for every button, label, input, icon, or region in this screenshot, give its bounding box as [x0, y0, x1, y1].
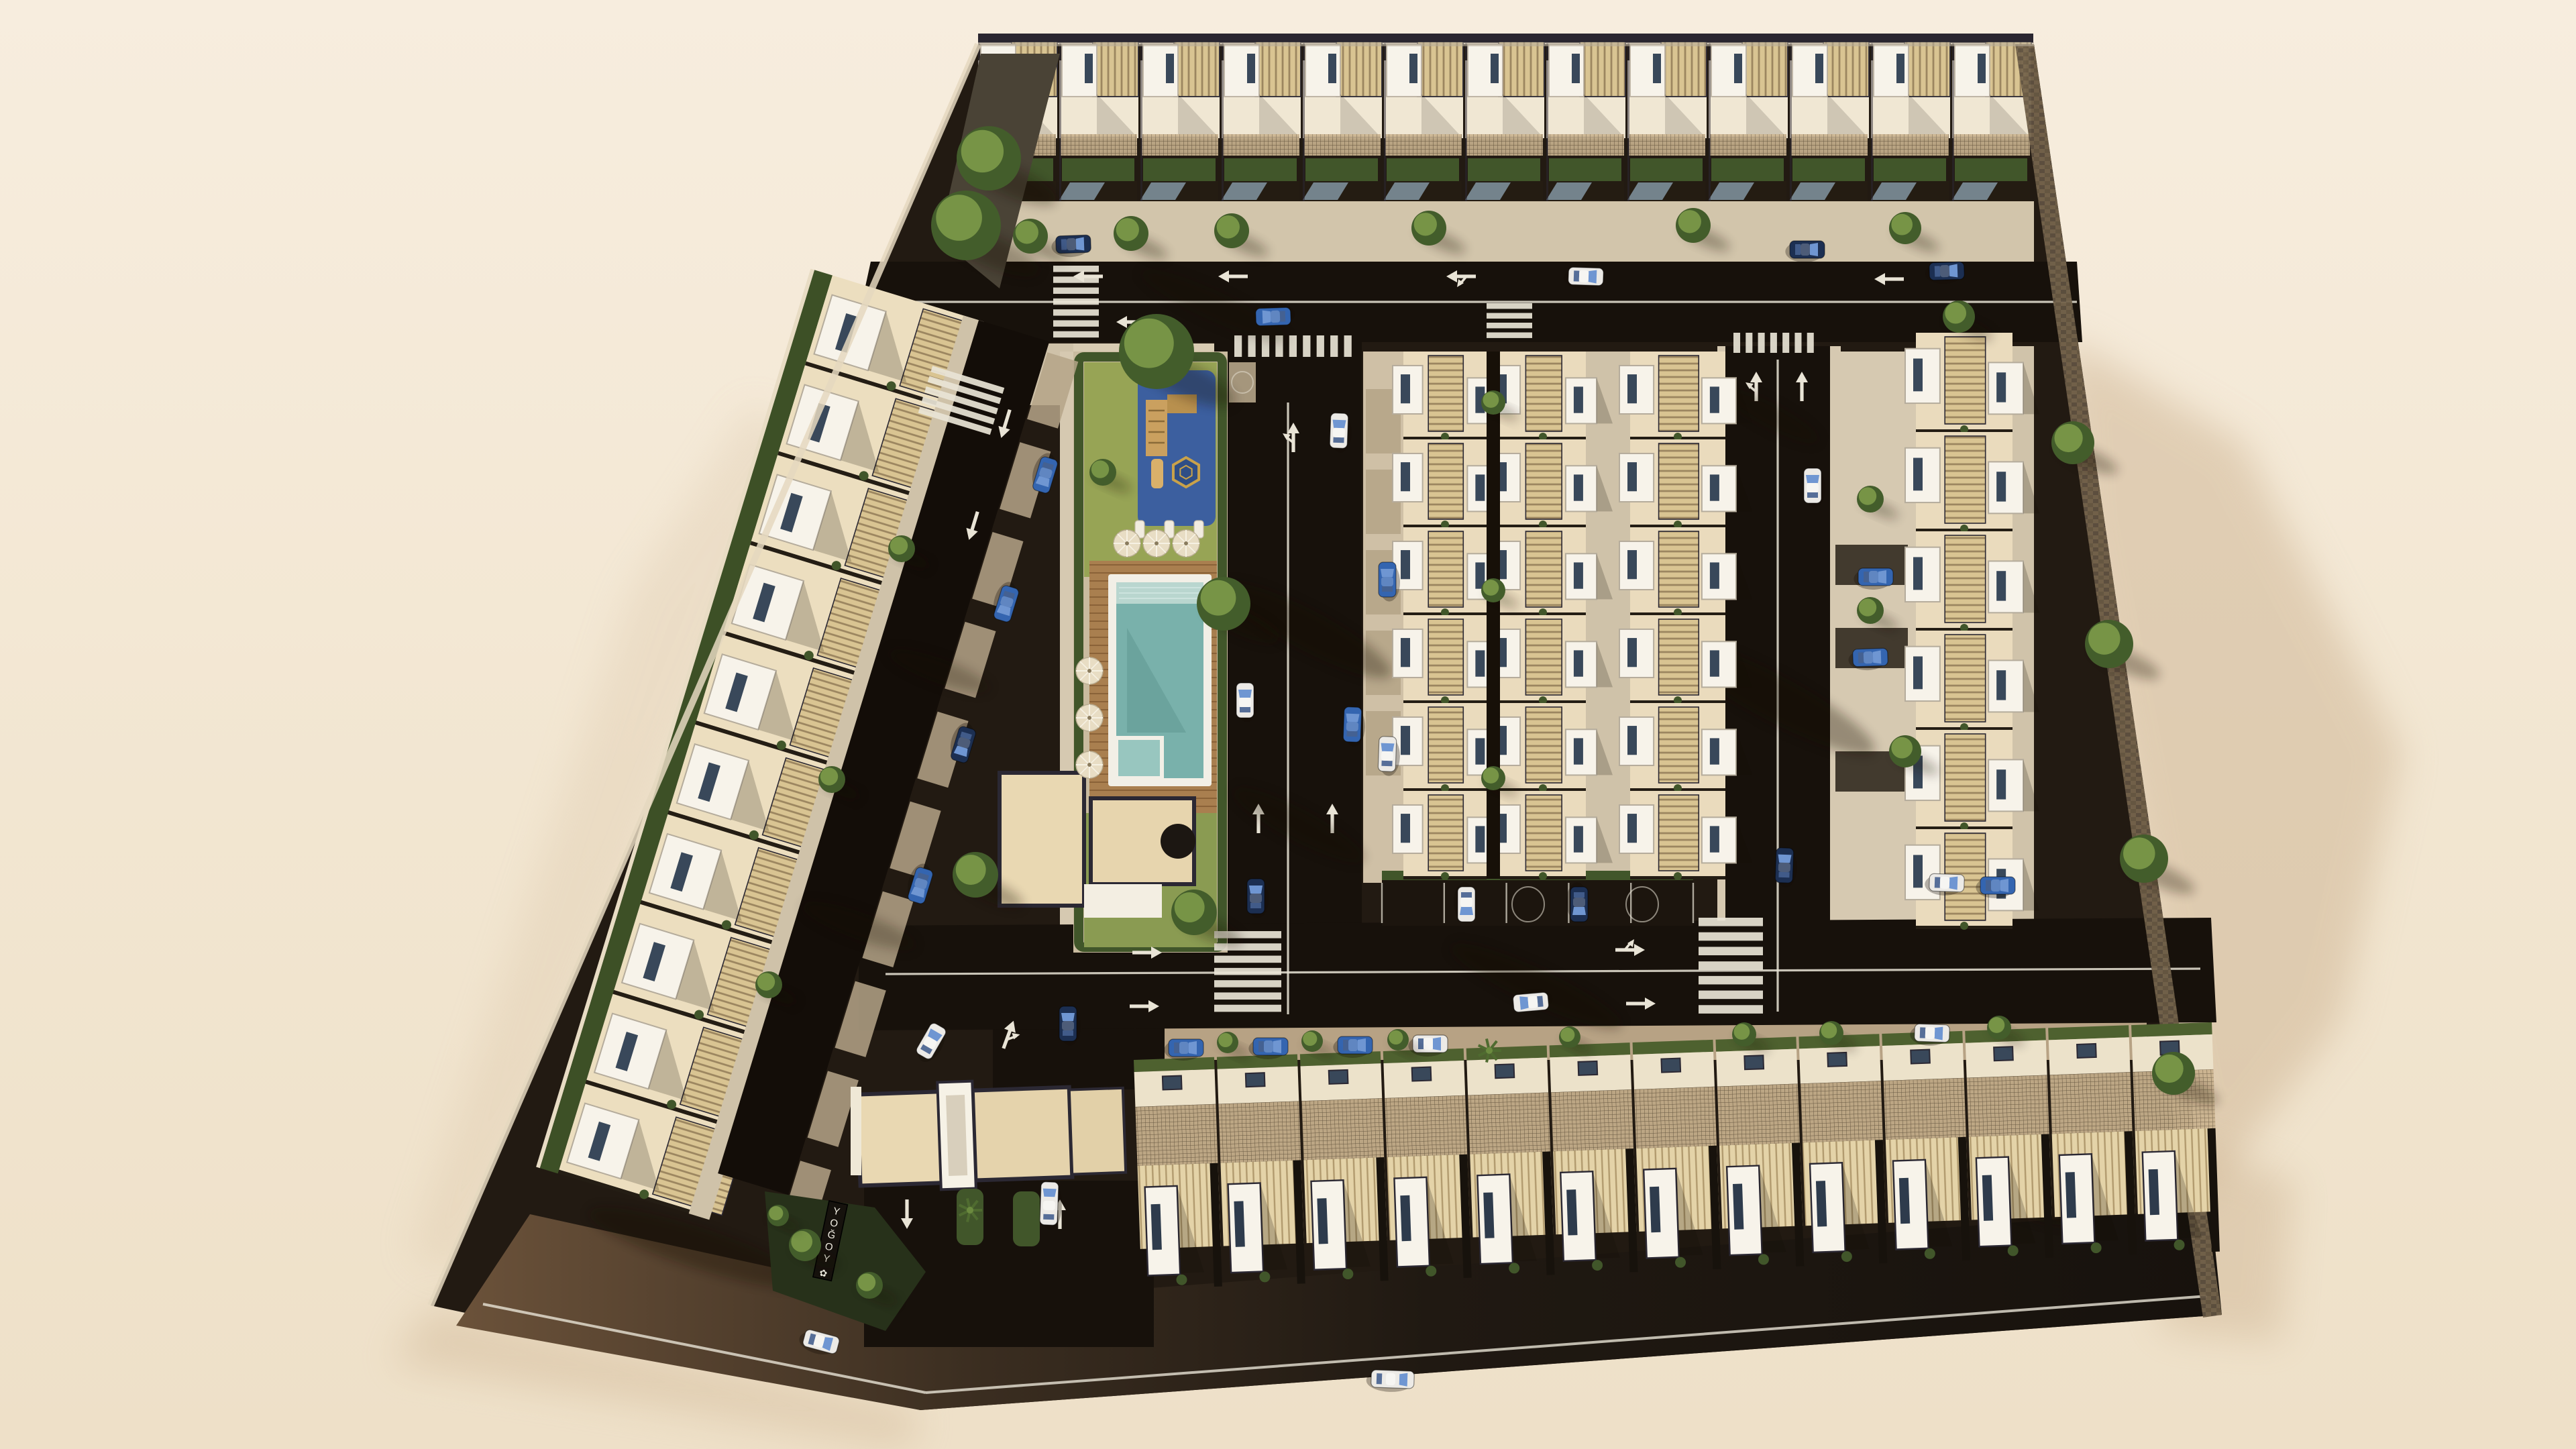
- window: [1574, 562, 1583, 588]
- car-rear-window: [1807, 492, 1818, 498]
- hedge-tuft: [1960, 922, 1968, 930]
- pergola-roof: [1336, 42, 1382, 97]
- tree-canopy-light: [1891, 214, 1913, 235]
- planter-hedge: [1630, 158, 1703, 181]
- railing-mesh: [1791, 134, 1868, 156]
- hedge-tuft: [1674, 872, 1682, 880]
- window: [1996, 472, 2006, 501]
- pool-umbrella: [1114, 530, 1140, 557]
- tree-canopy-light: [1859, 598, 1876, 616]
- zebra-bar: [1344, 335, 1352, 357]
- window: [1475, 474, 1485, 500]
- median-planter: [957, 1189, 983, 1245]
- window: [1401, 374, 1410, 403]
- car-windshield: [1519, 996, 1529, 1010]
- car-roof: [1381, 751, 1393, 761]
- window: [1409, 54, 1417, 83]
- window: [1744, 1055, 1764, 1069]
- tree-canopy-light: [757, 973, 775, 990]
- tree-canopy-light: [791, 1231, 812, 1252]
- unit-trim: [1627, 42, 1629, 201]
- tree-canopy-light: [2155, 1055, 2183, 1083]
- car-windshield: [1878, 570, 1886, 584]
- tree-canopy-light: [1414, 213, 1437, 235]
- car-windshield: [1460, 907, 1473, 915]
- zebra-bar: [1699, 976, 1763, 985]
- car-roof: [1043, 1201, 1055, 1211]
- window: [1815, 54, 1823, 83]
- car-rear-window: [1063, 1030, 1073, 1036]
- tree-canopy-light: [1124, 319, 1174, 368]
- window: [1978, 54, 1986, 83]
- car-rear-window: [1574, 270, 1580, 281]
- pergola-roof: [1823, 42, 1869, 97]
- car-rear-window: [1935, 266, 1941, 276]
- unit-trim: [1303, 42, 1305, 201]
- car-rear-window: [1377, 1373, 1383, 1384]
- railing-mesh: [1710, 134, 1786, 156]
- zebra-bar: [1487, 333, 1532, 338]
- site-plan-render-canvas: YOĞOY✿: [0, 0, 2576, 1449]
- car-rear-window: [1537, 996, 1543, 1007]
- tree-canopy-light: [1734, 1024, 1750, 1040]
- zebra-bar: [1699, 932, 1763, 941]
- car-roof: [1239, 698, 1251, 707]
- zebra-bar: [1214, 956, 1281, 963]
- car-rear-window: [1250, 903, 1261, 908]
- entrance-gate: [857, 1076, 1126, 1193]
- window: [1475, 826, 1485, 852]
- zebra-bar: [1330, 335, 1338, 357]
- window: [1982, 1175, 1993, 1220]
- car-windshield: [1810, 243, 1818, 256]
- window: [1994, 1046, 2013, 1061]
- balcony-box: [1976, 1157, 2012, 1247]
- balcony-box: [1228, 1183, 1264, 1273]
- gate-side-roof: [1069, 1088, 1126, 1175]
- window: [1913, 656, 1923, 689]
- tree-canopy-light: [1821, 1022, 1837, 1038]
- planter-hedge: [1062, 158, 1134, 181]
- pergola-roof: [1255, 42, 1301, 97]
- window: [1911, 1050, 1930, 1064]
- pergola-roof: [1428, 795, 1463, 871]
- window: [1401, 638, 1410, 667]
- window: [1246, 1073, 1265, 1087]
- car-windshield: [1399, 1373, 1408, 1386]
- car-roof: [1573, 898, 1585, 907]
- clubhouse-roof: [1000, 773, 1084, 906]
- car-roof: [1067, 238, 1077, 250]
- car-rear-window: [1343, 1040, 1348, 1051]
- zebra-bar: [1733, 333, 1740, 353]
- window: [1710, 386, 1719, 413]
- umbrella-pole: [1087, 669, 1091, 673]
- zebra-bar: [1758, 333, 1765, 353]
- planter-hedge: [1224, 158, 1297, 181]
- window: [1650, 1187, 1660, 1232]
- pergola-roof: [1945, 436, 1985, 523]
- umbrella-pole: [1184, 541, 1188, 545]
- railing-mesh: [1629, 134, 1705, 156]
- window: [1247, 54, 1255, 83]
- palm-crown: [967, 1207, 973, 1214]
- pergola-roof: [1428, 707, 1463, 783]
- pool-umbrella: [1076, 657, 1103, 684]
- unit-trim: [1140, 42, 1142, 201]
- pergola-roof: [1174, 42, 1220, 97]
- car-windshield: [1381, 569, 1394, 577]
- unit-trim: [1222, 42, 1224, 201]
- railing-mesh: [1142, 134, 1218, 156]
- tree-canopy-light: [890, 537, 908, 554]
- pergola-roof: [1093, 42, 1138, 97]
- car-windshield: [1589, 270, 1597, 283]
- window: [1401, 550, 1410, 579]
- zebra-bar: [1807, 333, 1814, 353]
- planter-hedge: [1305, 158, 1378, 181]
- pergola-mesh: [1717, 1083, 1800, 1145]
- pergola-mesh: [1551, 1089, 1633, 1151]
- unit-trim: [1059, 42, 1061, 201]
- car-roof: [1864, 651, 1874, 663]
- window: [1574, 386, 1583, 413]
- zebra-bar: [1699, 991, 1763, 1000]
- pergola-roof: [1945, 635, 1985, 722]
- pergola-roof: [1945, 734, 1985, 821]
- car-roof: [1527, 996, 1538, 1008]
- window: [1412, 1067, 1432, 1081]
- pergola-roof: [1661, 42, 1707, 97]
- tree-canopy-light: [1989, 1017, 2005, 1033]
- railing-mesh: [1466, 134, 1543, 156]
- car-roof: [1386, 1373, 1396, 1385]
- gate-canopy: [973, 1087, 1073, 1181]
- car-windshield: [1358, 1038, 1366, 1052]
- tree-canopy-light: [2088, 623, 2121, 655]
- window: [1572, 54, 1580, 83]
- umbrella-pole: [1087, 716, 1091, 720]
- unit-trim: [1871, 42, 1873, 201]
- car-rear-window: [1258, 1041, 1264, 1052]
- pergola-roof: [1525, 531, 1562, 607]
- window: [1710, 738, 1719, 764]
- car-rear-window: [1381, 761, 1392, 767]
- pool-umbrella: [1143, 530, 1170, 557]
- window: [1401, 726, 1410, 755]
- car-rear-window: [1061, 239, 1067, 250]
- window: [1627, 726, 1637, 755]
- roof-planter: [1161, 824, 1195, 859]
- window: [1574, 650, 1583, 676]
- car-windshield: [1778, 855, 1791, 863]
- zebra-bar: [1248, 335, 1255, 357]
- pergola-roof: [1499, 42, 1544, 97]
- window: [1627, 374, 1637, 403]
- unit-trim: [1790, 42, 1792, 201]
- window: [1913, 458, 1923, 490]
- window: [1483, 1192, 1494, 1238]
- car-rear-window: [1382, 586, 1393, 592]
- window: [1913, 557, 1923, 590]
- tree-canopy-light: [1483, 392, 1499, 408]
- car-windshield: [1332, 420, 1346, 429]
- sidewalk: [2012, 346, 2034, 945]
- window: [2065, 1172, 2076, 1218]
- kid-pool: [1116, 738, 1162, 778]
- window: [2149, 1169, 2159, 1215]
- tree-canopy-light: [1175, 892, 1205, 922]
- pergola-mesh: [2050, 1072, 2133, 1134]
- pergola-roof: [1525, 795, 1562, 871]
- window: [1734, 54, 1742, 83]
- car-windshield: [1076, 237, 1085, 250]
- umbrella-pole: [1155, 541, 1159, 545]
- window: [1163, 1076, 1182, 1090]
- balcony-box: [1727, 1166, 1762, 1256]
- tree-canopy-light: [1945, 303, 1966, 324]
- planter-hedge: [1143, 158, 1216, 181]
- railing-mesh: [1548, 134, 1624, 156]
- zebra-bar: [1487, 323, 1532, 328]
- window: [1913, 358, 1923, 391]
- window: [1574, 474, 1583, 500]
- balcony-box: [1810, 1163, 1845, 1252]
- car-rear-window: [1461, 892, 1472, 898]
- zebra-bar: [1053, 309, 1099, 315]
- planter-hedge: [1468, 158, 1540, 181]
- sidewalk: [1586, 352, 1630, 880]
- pergola-roof: [1659, 795, 1699, 871]
- window: [1827, 1053, 1847, 1067]
- tree-canopy-light: [1116, 218, 1139, 241]
- window: [1475, 738, 1485, 764]
- tree-canopy-light: [1483, 580, 1499, 596]
- zebra-bar: [1053, 331, 1099, 337]
- car-roof: [1348, 1039, 1358, 1051]
- tree-canopy-light: [820, 767, 838, 785]
- window: [1401, 462, 1410, 491]
- pergola-mesh: [1967, 1075, 2049, 1136]
- tree-canopy-light: [1891, 737, 1913, 759]
- car-windshield: [1381, 743, 1394, 752]
- window: [1733, 1183, 1743, 1229]
- tree-canopy-light: [936, 195, 982, 241]
- car-roof: [1940, 877, 1950, 889]
- window: [1710, 650, 1719, 676]
- car-rear-window: [1346, 731, 1357, 737]
- pergola-roof: [1525, 707, 1562, 783]
- pergola-roof: [1659, 707, 1699, 783]
- railing-mesh: [1953, 134, 2030, 156]
- guard-pillar: [851, 1087, 861, 1175]
- planter-hedge: [1792, 158, 1865, 181]
- tree-canopy-light: [956, 855, 986, 885]
- planter-hedge: [1387, 158, 1459, 181]
- pergola-roof: [1945, 337, 1985, 424]
- pergola-roof: [1659, 619, 1699, 695]
- window: [1329, 1070, 1348, 1084]
- pool-umbrella: [1076, 704, 1103, 731]
- car-rear-window: [1333, 437, 1344, 443]
- window: [1328, 54, 1336, 83]
- zebra-bar: [1234, 335, 1242, 357]
- railing-mesh: [1385, 134, 1462, 156]
- railing-mesh: [1223, 134, 1299, 156]
- pergola-roof: [1525, 619, 1562, 695]
- railing-mesh: [1304, 134, 1381, 156]
- zebra-bar: [1214, 992, 1281, 1000]
- pergola-roof: [1417, 42, 1463, 97]
- car-rear-window: [1280, 311, 1286, 321]
- tree-canopy-light: [1091, 460, 1109, 478]
- car-roof: [1925, 1027, 1935, 1039]
- tree-canopy-light: [858, 1273, 875, 1291]
- window: [1578, 1061, 1598, 1075]
- zebra-bar: [1746, 333, 1752, 353]
- car-windshield: [1042, 1189, 1056, 1197]
- tree-canopy-light: [1560, 1028, 1574, 1042]
- window: [1317, 1198, 1328, 1244]
- car-roof: [1460, 898, 1472, 907]
- car-roof: [1264, 1040, 1273, 1053]
- unit-trim: [1384, 42, 1386, 201]
- pergola-mesh: [1301, 1098, 1384, 1160]
- balcony-box: [1145, 1186, 1181, 1276]
- car-roof: [1271, 311, 1281, 323]
- car-rear-window: [1935, 877, 1941, 888]
- car-roof: [1801, 244, 1810, 256]
- planter-hedge: [1955, 158, 2027, 181]
- balcony-box: [1477, 1175, 1513, 1265]
- window: [1627, 814, 1637, 843]
- pergola-mesh: [1385, 1095, 1467, 1157]
- tree-canopy-light: [1218, 1033, 1232, 1047]
- pergola-roof: [1428, 619, 1463, 695]
- tree-canopy-light: [1483, 767, 1499, 784]
- tree-canopy-light: [1201, 580, 1236, 616]
- zebra-bar: [1699, 918, 1763, 926]
- window: [1627, 462, 1637, 491]
- hedge-tuft: [1441, 872, 1449, 880]
- planter-hedge: [1711, 158, 1784, 181]
- window: [1896, 54, 1904, 83]
- window: [1899, 1178, 1910, 1224]
- window: [1401, 814, 1410, 843]
- zebra-bar: [1770, 333, 1777, 353]
- zebra-bar: [1053, 288, 1099, 294]
- window: [1491, 54, 1499, 83]
- window: [1710, 562, 1719, 588]
- hedge-tuft: [1539, 872, 1547, 880]
- pergola-mesh: [1468, 1092, 1550, 1154]
- window: [1166, 54, 1174, 83]
- railing-mesh: [1061, 134, 1137, 156]
- window: [1996, 769, 2006, 799]
- window: [1400, 1195, 1411, 1241]
- car-windshield: [1346, 714, 1359, 722]
- tree-canopy-light: [1859, 487, 1876, 504]
- window: [1566, 1189, 1577, 1235]
- car-windshield: [1263, 310, 1271, 323]
- car-windshield: [1873, 650, 1882, 663]
- tree-canopy-light: [769, 1206, 783, 1220]
- unit-trim: [1709, 42, 1711, 201]
- tree-canopy-light: [1303, 1032, 1317, 1046]
- zebra-bar: [1794, 333, 1801, 353]
- pergola-roof: [1525, 443, 1562, 519]
- zebra-bar: [1303, 335, 1310, 357]
- car-rear-window: [1574, 892, 1585, 898]
- crosswalk: [1234, 335, 1352, 357]
- pergola-mesh: [1634, 1087, 1717, 1148]
- car-roof: [1807, 483, 1819, 492]
- car-roof: [1940, 265, 1950, 277]
- pergola-mesh: [1884, 1078, 1966, 1140]
- car-windshield: [1189, 1041, 1197, 1055]
- unit-trim: [1465, 42, 1467, 201]
- zebra-bar: [1289, 335, 1297, 357]
- car-rear-window: [1418, 1038, 1424, 1049]
- balcony-box: [1311, 1180, 1346, 1270]
- car-rear-window: [1240, 707, 1250, 712]
- car-roof: [1869, 571, 1878, 583]
- window: [1653, 54, 1661, 83]
- window: [1627, 550, 1637, 579]
- zebra-bar: [1214, 968, 1281, 975]
- unit-trim: [1546, 42, 1548, 201]
- play-slide: [1151, 459, 1163, 488]
- pergola-roof: [1904, 42, 1950, 97]
- car-rear-window: [1795, 244, 1801, 255]
- window: [1710, 826, 1719, 852]
- tree-canopy-light: [1016, 221, 1038, 244]
- car-roof: [1062, 1021, 1074, 1030]
- window: [1661, 1059, 1680, 1073]
- tree-canopy-light: [1389, 1030, 1403, 1044]
- window: [1996, 571, 2006, 600]
- block-gap: [1487, 352, 1500, 879]
- pergola-roof: [1428, 356, 1463, 431]
- car-roof: [1579, 270, 1589, 282]
- clubhouse-terrace: [1084, 884, 1162, 918]
- zebra-bar: [1214, 1005, 1281, 1012]
- pool-umbrella: [1076, 751, 1103, 778]
- planter-hedge: [1874, 158, 1946, 181]
- car-roof: [1179, 1042, 1189, 1054]
- pergola-mesh: [1135, 1104, 1218, 1166]
- balcony-box: [1560, 1171, 1596, 1261]
- pergola-roof: [1659, 356, 1699, 431]
- car-rear-window: [1864, 572, 1869, 582]
- window: [1234, 1201, 1244, 1246]
- pergola-roof: [1659, 443, 1699, 519]
- balcony-box: [1394, 1177, 1430, 1267]
- pergola-roof: [1428, 443, 1463, 519]
- window: [1574, 738, 1583, 764]
- railing-mesh: [1872, 134, 1949, 156]
- tree-canopy-light: [1217, 215, 1240, 238]
- tree-canopy-light: [2054, 424, 2082, 452]
- balcony-box: [2143, 1151, 2178, 1241]
- zebra-bar: [1317, 335, 1324, 357]
- window: [1710, 474, 1719, 500]
- car-windshield: [1238, 690, 1252, 698]
- zebra-bar: [1782, 333, 1789, 353]
- window: [1627, 638, 1637, 667]
- tree-canopy-light: [961, 130, 1004, 172]
- pergola-roof: [1428, 531, 1463, 607]
